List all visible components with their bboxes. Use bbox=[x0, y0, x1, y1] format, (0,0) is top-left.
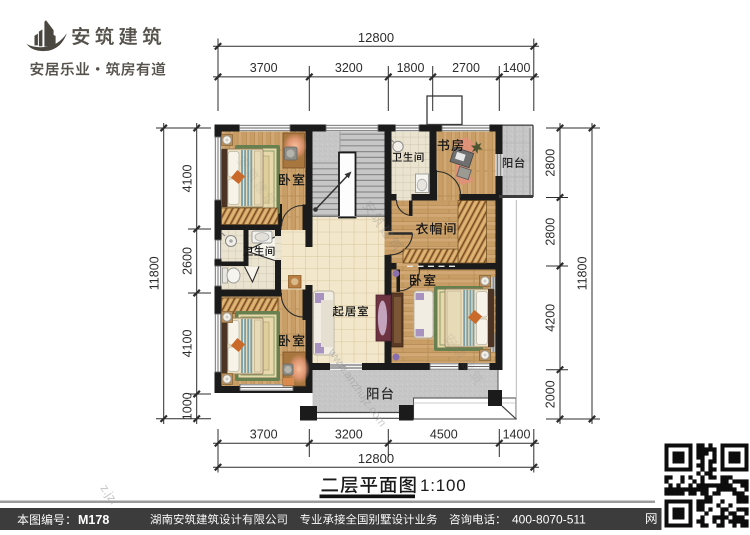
svg-text:12800: 12800 bbox=[358, 451, 394, 466]
svg-text:3200: 3200 bbox=[335, 61, 363, 75]
svg-text:2600: 2600 bbox=[181, 247, 195, 275]
svg-text:1400: 1400 bbox=[503, 428, 531, 442]
svg-text:1400: 1400 bbox=[503, 61, 531, 75]
svg-text:3200: 3200 bbox=[335, 428, 363, 442]
svg-text:2800: 2800 bbox=[544, 218, 558, 246]
svg-text:12800: 12800 bbox=[358, 30, 394, 45]
svg-text:3700: 3700 bbox=[250, 61, 278, 75]
svg-text:1800: 1800 bbox=[397, 61, 425, 75]
svg-text:2000: 2000 bbox=[544, 380, 558, 408]
svg-text:1000: 1000 bbox=[181, 392, 195, 420]
svg-text:11800: 11800 bbox=[576, 257, 590, 291]
svg-text:2800: 2800 bbox=[544, 149, 558, 177]
svg-text:3700: 3700 bbox=[250, 428, 278, 442]
svg-text:4100: 4100 bbox=[181, 165, 195, 193]
svg-text:11800: 11800 bbox=[148, 256, 162, 290]
svg-text:4200: 4200 bbox=[544, 304, 558, 332]
svg-text:1:100: 1:100 bbox=[420, 476, 467, 495]
svg-text:4500: 4500 bbox=[430, 428, 458, 442]
svg-text:400-8070-511: 400-8070-511 bbox=[512, 513, 586, 527]
svg-text:M178: M178 bbox=[78, 513, 109, 527]
svg-text:2700: 2700 bbox=[452, 61, 480, 75]
svg-text:4100: 4100 bbox=[181, 330, 195, 358]
